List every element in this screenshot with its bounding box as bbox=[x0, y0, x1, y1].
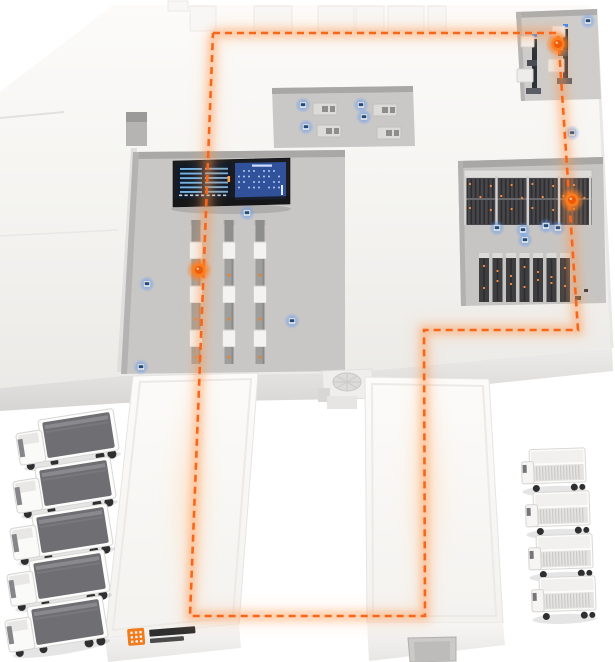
board-dot bbox=[253, 187, 255, 189]
rack-led bbox=[483, 287, 485, 289]
rack-unit bbox=[493, 253, 503, 302]
location-marker bbox=[186, 257, 212, 283]
board-dot bbox=[263, 170, 265, 172]
logo-grid-dot bbox=[135, 636, 138, 639]
desk-slot bbox=[394, 130, 399, 136]
rack-unit-cap bbox=[533, 253, 543, 258]
board-dot bbox=[278, 187, 280, 189]
marker-highlight bbox=[197, 268, 199, 270]
crane-arm bbox=[527, 60, 537, 66]
truck-window bbox=[523, 465, 527, 473]
rack-unit bbox=[506, 253, 516, 302]
iot-device bbox=[356, 109, 372, 125]
desk-slot bbox=[330, 106, 335, 112]
logo-grid-dot bbox=[131, 636, 134, 639]
rack-post bbox=[495, 176, 498, 225]
stair-notch bbox=[126, 112, 147, 146]
conveyor-indicator bbox=[259, 318, 262, 321]
truck-box bbox=[531, 576, 597, 625]
marker-core bbox=[554, 40, 562, 48]
rack-unit-cap bbox=[520, 253, 530, 258]
conveyor-indicator bbox=[228, 356, 231, 359]
rack-led bbox=[552, 209, 554, 211]
truck-box bbox=[528, 534, 594, 583]
workstation-desk bbox=[373, 104, 397, 116]
rack-unit-cap bbox=[506, 253, 516, 258]
conveyor-segment-edge bbox=[263, 303, 265, 330]
board-footer-tick bbox=[179, 195, 182, 197]
board-dot bbox=[278, 176, 280, 178]
crane-base bbox=[526, 88, 541, 94]
iot-device bbox=[295, 97, 311, 113]
rack-led bbox=[469, 183, 471, 185]
rack-led bbox=[511, 208, 513, 210]
conveyor-indicator bbox=[228, 274, 231, 277]
device-screen bbox=[586, 19, 591, 22]
rack-led bbox=[521, 197, 523, 199]
marker-highlight bbox=[570, 198, 572, 200]
truck-window bbox=[527, 508, 531, 516]
workstation-desk bbox=[313, 103, 337, 115]
board-dot bbox=[273, 181, 275, 183]
rack-led bbox=[542, 196, 544, 198]
marker-highlight bbox=[556, 42, 558, 44]
desk-slot bbox=[390, 107, 395, 113]
board-dot bbox=[273, 170, 275, 172]
rack-led bbox=[523, 266, 525, 268]
truck-box-top bbox=[531, 450, 583, 464]
device-screen bbox=[139, 365, 144, 368]
board-screen-right bbox=[235, 162, 286, 200]
desk-slot bbox=[382, 107, 388, 113]
conveyor-segment-edge bbox=[232, 303, 234, 330]
board-dot bbox=[268, 170, 270, 172]
rack-unit bbox=[520, 253, 530, 302]
rack-led bbox=[523, 286, 525, 288]
device-screen bbox=[544, 224, 549, 227]
board-footer-tick bbox=[190, 195, 193, 197]
rack-led bbox=[500, 195, 502, 197]
board-dot bbox=[243, 170, 245, 172]
rack-led bbox=[531, 183, 533, 185]
marker-core bbox=[195, 266, 203, 274]
conveyor-indicator bbox=[259, 274, 262, 277]
conveyor-tote bbox=[254, 242, 267, 259]
rack-led bbox=[550, 282, 552, 284]
device-screen bbox=[301, 103, 306, 106]
conveyor-tote bbox=[254, 286, 267, 303]
board-footer-tick bbox=[223, 195, 226, 197]
conveyor-post bbox=[225, 220, 234, 242]
truck-box bbox=[521, 448, 587, 497]
iot-device bbox=[239, 205, 255, 221]
location-marker bbox=[545, 31, 571, 57]
desk-slot bbox=[326, 128, 332, 134]
board-dot bbox=[258, 176, 260, 178]
display-board bbox=[171, 158, 291, 214]
board-dot bbox=[243, 176, 245, 178]
rack-post bbox=[589, 176, 592, 225]
iot-device bbox=[133, 359, 149, 375]
conveyor-line bbox=[223, 220, 236, 364]
board-dot bbox=[248, 176, 250, 178]
logistics-park-svg bbox=[0, 0, 615, 662]
board-dot bbox=[243, 181, 245, 183]
logo-grid-dot bbox=[135, 640, 138, 643]
logo-grid-dot bbox=[130, 632, 133, 635]
rack-led bbox=[537, 279, 539, 281]
desk-slot bbox=[322, 106, 328, 112]
rack-led bbox=[510, 275, 512, 277]
board-dot bbox=[268, 176, 270, 178]
desk-slot bbox=[334, 128, 339, 134]
device-screen bbox=[245, 211, 250, 214]
device-screen bbox=[495, 226, 500, 229]
board-dot bbox=[238, 176, 240, 178]
device-screen bbox=[362, 115, 367, 118]
conveyor-segment-edge bbox=[263, 347, 265, 364]
iot-device bbox=[139, 276, 155, 292]
device-screen bbox=[523, 238, 528, 241]
rack-unit-cap bbox=[547, 253, 557, 258]
board-dot bbox=[263, 176, 265, 178]
logo-grid-dot bbox=[139, 631, 142, 634]
conveyor-indicator bbox=[259, 356, 262, 359]
rack-led bbox=[479, 196, 481, 198]
truck-box-top bbox=[538, 536, 590, 550]
conveyor-segment-edge bbox=[263, 259, 265, 286]
marker-core bbox=[568, 196, 576, 204]
rack-unit bbox=[547, 253, 557, 302]
device-screen bbox=[290, 319, 295, 322]
iot-device bbox=[298, 119, 314, 135]
conveyor-line bbox=[254, 220, 267, 364]
conveyor-segment-edge bbox=[232, 259, 234, 286]
truck-box-top bbox=[535, 493, 587, 507]
board-alert-cell bbox=[228, 176, 231, 182]
truck-window bbox=[533, 593, 537, 601]
rack-led bbox=[496, 270, 498, 272]
device-screen bbox=[359, 103, 364, 106]
rack-led bbox=[550, 276, 552, 278]
device-screen bbox=[521, 228, 526, 231]
board-bar bbox=[281, 185, 283, 195]
rack-led bbox=[511, 184, 513, 186]
workstation-desk bbox=[377, 127, 401, 139]
logo-grid-dot bbox=[140, 635, 143, 638]
rack-led bbox=[531, 207, 533, 209]
rack-led bbox=[537, 271, 539, 273]
rack-post bbox=[464, 176, 467, 225]
rack-unit bbox=[533, 253, 543, 302]
board-dot bbox=[238, 187, 240, 189]
board-footer-tick bbox=[185, 195, 188, 197]
rack-led bbox=[490, 209, 492, 211]
conveyor-tote bbox=[223, 286, 236, 303]
rack-led bbox=[552, 185, 554, 187]
board-dot bbox=[258, 187, 260, 189]
board-dot bbox=[258, 181, 260, 183]
board-footer-tick bbox=[218, 195, 221, 197]
rack-led bbox=[510, 283, 512, 285]
rack-post bbox=[527, 176, 530, 225]
iot-device bbox=[517, 232, 533, 248]
board-dot bbox=[238, 181, 240, 183]
board-dot bbox=[253, 170, 255, 172]
conveyor-segment-edge bbox=[232, 347, 234, 364]
board-dot bbox=[278, 181, 280, 183]
truck-box-top bbox=[541, 578, 593, 592]
crane-carriage bbox=[517, 69, 533, 82]
board-right-header bbox=[252, 165, 272, 167]
rack-unit-cap bbox=[479, 253, 489, 258]
logo-grid-dot bbox=[131, 641, 134, 644]
device-screen bbox=[304, 125, 309, 128]
rack-led bbox=[496, 280, 498, 282]
board-dot bbox=[263, 181, 265, 183]
conveyor-post bbox=[256, 220, 265, 242]
board-dot bbox=[248, 187, 250, 189]
truck-window bbox=[530, 551, 534, 559]
truck-box bbox=[525, 491, 591, 540]
board-dot bbox=[253, 181, 255, 183]
iot-device bbox=[580, 13, 596, 29]
conveyor-indicator bbox=[228, 318, 231, 321]
conveyor-tote bbox=[254, 330, 267, 347]
workstation-desk bbox=[317, 125, 341, 137]
iot-device bbox=[489, 220, 505, 236]
device-screen bbox=[556, 226, 561, 229]
conveyor-tote bbox=[223, 330, 236, 347]
desk-slot bbox=[386, 130, 392, 136]
dock-door-notch bbox=[408, 637, 456, 662]
rack-unit bbox=[479, 253, 489, 302]
board-dot bbox=[268, 187, 270, 189]
rack-led bbox=[483, 265, 485, 267]
device-screen bbox=[145, 282, 150, 285]
iot-device bbox=[284, 313, 300, 329]
logo-grid-dot bbox=[135, 631, 138, 634]
board-dot bbox=[248, 170, 250, 172]
board-dot bbox=[273, 187, 275, 189]
logo-grid-dot bbox=[140, 640, 143, 643]
rack-led bbox=[490, 185, 492, 187]
location-marker bbox=[559, 187, 585, 213]
rack-unit-cap bbox=[493, 253, 503, 258]
scene-illustration bbox=[0, 0, 615, 662]
rack-led bbox=[469, 207, 471, 209]
conveyor-tote bbox=[223, 242, 236, 259]
